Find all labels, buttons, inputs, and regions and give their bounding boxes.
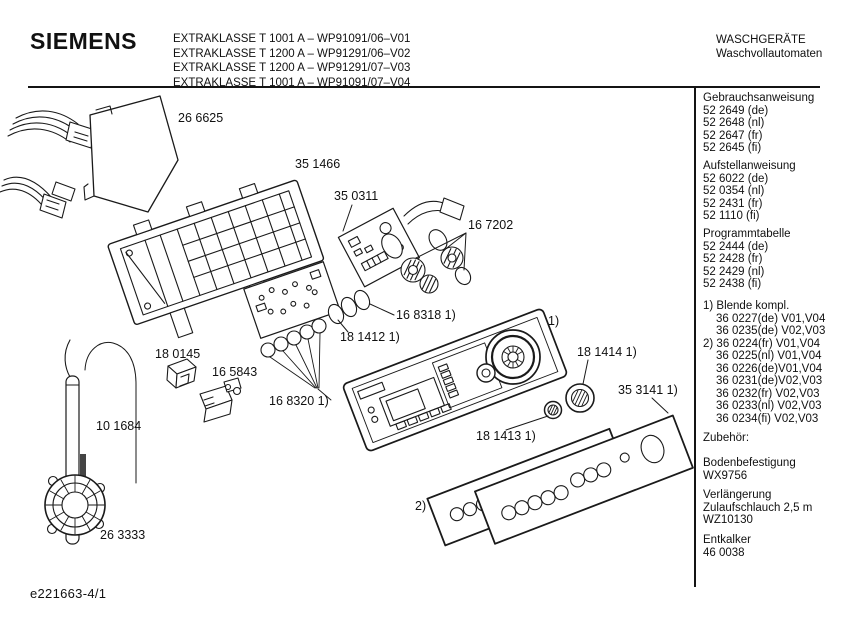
blende-line: 2) 36 0224(fr) V01,V04 [703, 338, 845, 351]
part-label-168318: 16 8318 1) [396, 308, 456, 322]
part-label-101684: 10 1684 [96, 419, 141, 433]
model-line: EXTRAKLASSE T 1200 A – WP91291/06–V02 [173, 47, 410, 62]
part-label-167202: 16 7202 [468, 218, 513, 232]
exploded-parts-diagram: 26 6625 35 1466 35 0311 16 7202 16 8318 … [0, 88, 695, 635]
part-label-263333: 26 3333 [100, 528, 145, 542]
blende-line: 36 0234(fi) V02,V03 [703, 413, 845, 426]
blende-line: 36 0226(de)V01,V04 [703, 363, 845, 376]
accessory-code: WX9756 [703, 470, 845, 483]
footnote-marker-2: 2) [415, 499, 426, 513]
accessory-name: Entkalker [703, 534, 845, 547]
blende-line: 36 0227(de) V01,V04 [703, 313, 845, 326]
wire-harness-icon [8, 111, 95, 148]
part-label-266625: 26 6625 [178, 111, 223, 125]
accessory-verlaengerung: Verlängerung Zulaufschlauch 2,5 m WZ1013… [703, 489, 845, 527]
model-list: EXTRAKLASSE T 1001 A – WP91091/06–V01 EX… [173, 32, 410, 90]
blende-line: 36 0233(nl) V02,V03 [703, 400, 845, 413]
part-number: 52 0354 (nl) [703, 185, 845, 198]
accessory-name: Bodenbefestigung [703, 457, 845, 470]
accessory-entkalker: Entkalker 46 0038 [703, 534, 845, 559]
model-line: EXTRAKLASSE T 1200 A – WP91291/07–V03 [173, 61, 410, 76]
siemens-logo: SIEMENS [30, 28, 137, 55]
product-category: WASCHGERÄTE Waschvollautomaten [716, 34, 822, 62]
part-number: 52 2438 (fi) [703, 278, 845, 291]
blende-line: 36 0235(de) V02,V03 [703, 325, 845, 338]
wire-harness-icon [0, 177, 75, 218]
part-number: 52 2649 (de) [703, 105, 845, 118]
part-number: 52 2645 (fi) [703, 142, 845, 155]
part-label-181413: 18 1413 1) [476, 429, 536, 443]
document-number: e221663-4/1 [30, 586, 106, 601]
part-number: 52 1110 (fi) [703, 210, 845, 223]
section-title: Aufstellanweisung [703, 160, 845, 173]
accessory-code: 46 0038 [703, 547, 845, 560]
part-label-351466: 35 1466 [295, 157, 340, 171]
part-number: 52 2431 (fr) [703, 198, 845, 211]
service-parts-page: SIEMENS EXTRAKLASSE T 1001 A – WP91091/0… [0, 0, 847, 635]
part-label-181414: 18 1414 1) [577, 345, 637, 359]
part-label-350311: 35 0311 [334, 189, 378, 203]
section-aufstellanweisung: Aufstellanweisung 52 6022 (de) 52 0354 (… [703, 160, 845, 223]
section-blende: 1) Blende kompl. 36 0227(de) V01,V04 36 … [703, 300, 845, 425]
category-subtitle: Waschvollautomaten [716, 48, 822, 62]
model-line: EXTRAKLASSE T 1001 A – WP91091/06–V01 [173, 32, 410, 47]
bracket-180145 [167, 359, 196, 388]
knob-181414 [566, 384, 594, 412]
part-number: 52 2429 (nl) [703, 266, 845, 279]
blende-line: 36 0225(nl) V01,V04 [703, 350, 845, 363]
section-title: Programmtabelle [703, 228, 845, 241]
part-number: 52 2648 (nl) [703, 117, 845, 130]
part-label-181412: 18 1412 1) [340, 330, 400, 344]
footnote-marker-1: 1) [548, 314, 559, 328]
accessory-name: Zulaufschlauch 2,5 m [703, 502, 845, 515]
accessories-title: Zubehör: [703, 432, 845, 445]
blende-line: 36 0231(de)V02,V03 [703, 375, 845, 388]
category-title: WASCHGERÄTE [716, 34, 822, 48]
part-label-168320: 16 8320 1) [269, 394, 329, 408]
cover-panel-266625 [84, 96, 178, 212]
accessory-name: Verlängerung [703, 489, 845, 502]
blende-line: 1) Blende kompl. [703, 300, 845, 313]
valve-165843 [200, 378, 241, 422]
part-label-165843: 16 5843 [212, 365, 257, 379]
section-programmtabelle: Programmtabelle 52 2444 (de) 52 2428 (fr… [703, 228, 845, 291]
part-label-180145: 18 0145 [155, 347, 200, 361]
part-number: 52 2428 (fr) [703, 253, 845, 266]
part-label-353141: 35 3141 1) [618, 383, 678, 397]
blende-line: 36 0232(fr) V02,V03 [703, 388, 845, 401]
part-number: 52 6022 (de) [703, 173, 845, 186]
part-number: 52 2647 (fr) [703, 130, 845, 143]
section-title: Gebrauchsanweisung [703, 92, 845, 105]
accessory-code: WZ10130 [703, 514, 845, 527]
section-gebrauchsanweisung: Gebrauchsanweisung 52 2649 (de) 52 2648 … [703, 92, 845, 155]
part-number: 52 2444 (de) [703, 241, 845, 254]
accessory-bodenbefestigung: Bodenbefestigung WX9756 [703, 457, 845, 482]
